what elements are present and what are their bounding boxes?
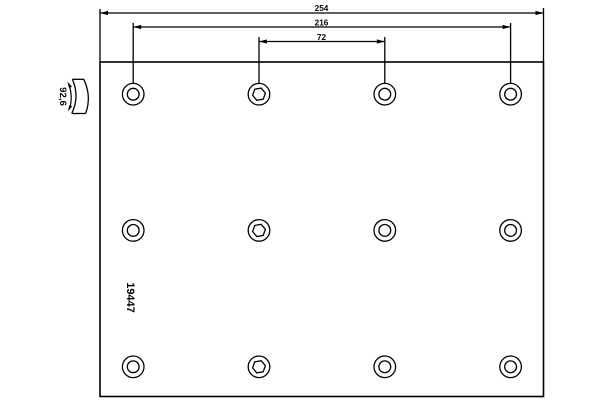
- svg-text:92,6: 92,6: [57, 87, 68, 106]
- svg-text:19447: 19447: [124, 282, 136, 313]
- svg-text:72: 72: [317, 33, 327, 42]
- svg-text:216: 216: [315, 19, 329, 28]
- svg-text:254: 254: [315, 4, 329, 13]
